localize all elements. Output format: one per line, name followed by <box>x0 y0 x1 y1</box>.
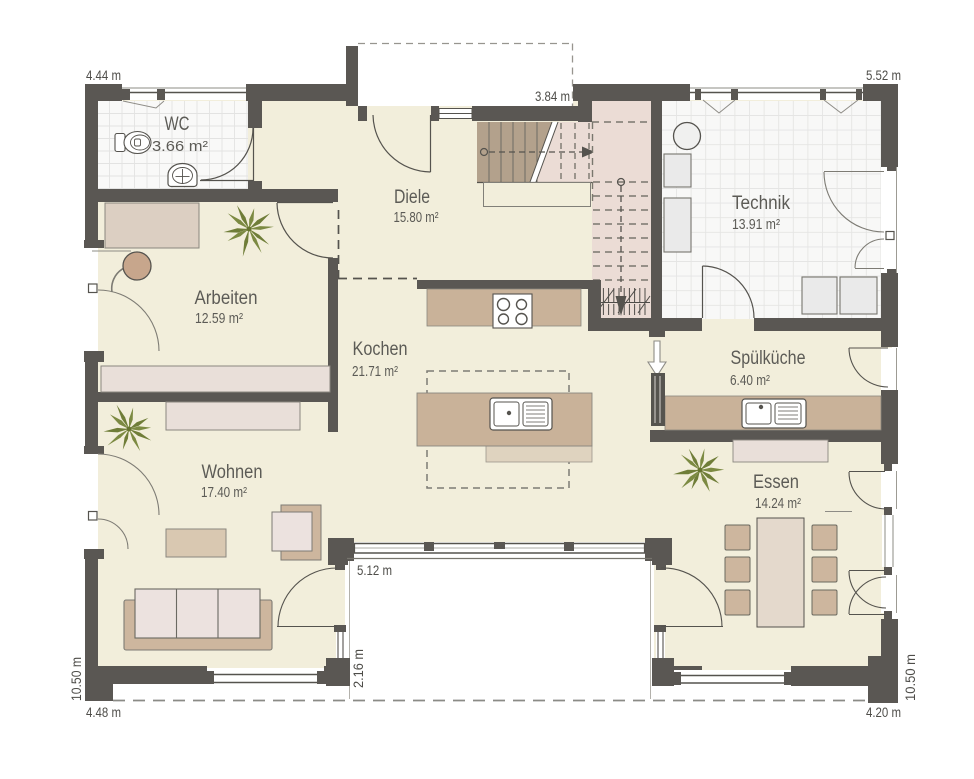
svg-text:5.52 m: 5.52 m <box>866 68 901 83</box>
svg-text:Technik: Technik <box>732 193 790 214</box>
svg-text:10.50 m: 10.50 m <box>69 657 84 701</box>
svg-text:12.59 m²: 12.59 m² <box>195 311 243 327</box>
svg-text:4.20 m: 4.20 m <box>866 705 901 720</box>
svg-text:Wohnen: Wohnen <box>202 462 263 483</box>
svg-text:Arbeiten: Arbeiten <box>195 288 258 309</box>
svg-text:Spülküche: Spülküche <box>731 348 806 369</box>
svg-text:10.50 m: 10.50 m <box>903 654 918 701</box>
svg-text:2.16 m: 2.16 m <box>351 649 366 688</box>
svg-text:4.48 m: 4.48 m <box>86 705 121 720</box>
svg-text:21.71 m²: 21.71 m² <box>352 364 398 380</box>
svg-text:5.12 m: 5.12 m <box>357 563 392 578</box>
svg-text:Kochen: Kochen <box>353 339 408 360</box>
svg-text:3.84 m: 3.84 m <box>535 89 570 104</box>
svg-text:6.40 m²: 6.40 m² <box>730 373 770 389</box>
svg-text:Essen: Essen <box>753 472 799 493</box>
svg-text:WC: WC <box>165 114 190 135</box>
svg-text:17.40 m²: 17.40 m² <box>201 485 247 501</box>
svg-text:4.44 m: 4.44 m <box>86 68 121 83</box>
svg-text:13.91 m²: 13.91 m² <box>732 217 780 233</box>
svg-text:3.66 m²: 3.66 m² <box>152 139 208 155</box>
svg-text:15.80 m²: 15.80 m² <box>394 210 439 226</box>
svg-text:14.24 m²: 14.24 m² <box>755 496 801 512</box>
svg-text:Diele: Diele <box>394 187 430 208</box>
